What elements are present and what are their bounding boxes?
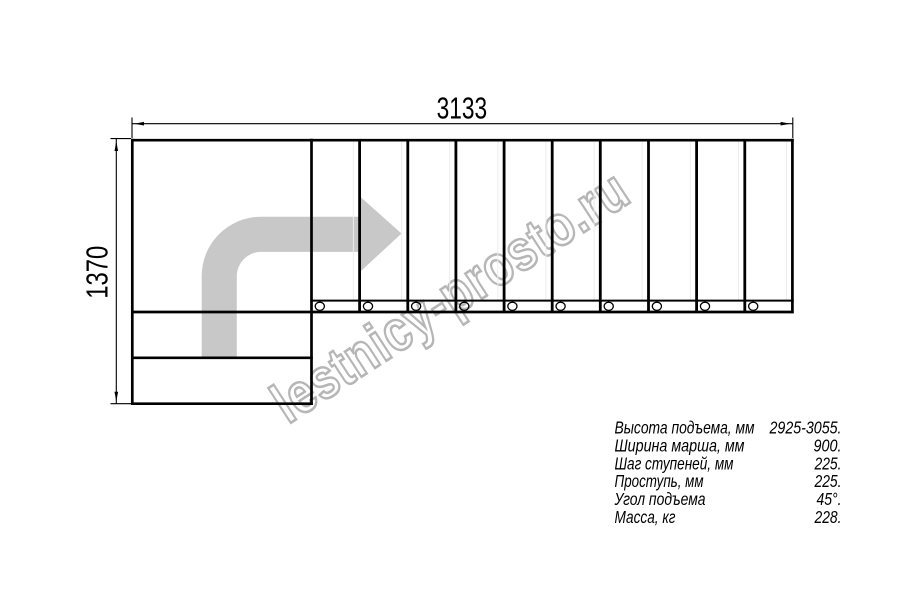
svg-text:1370: 1370	[80, 246, 115, 299]
svg-text:3133: 3133	[437, 90, 488, 125]
svg-text:228.: 228.	[814, 507, 842, 527]
svg-text:Масса, кг: Масса, кг	[615, 507, 676, 527]
